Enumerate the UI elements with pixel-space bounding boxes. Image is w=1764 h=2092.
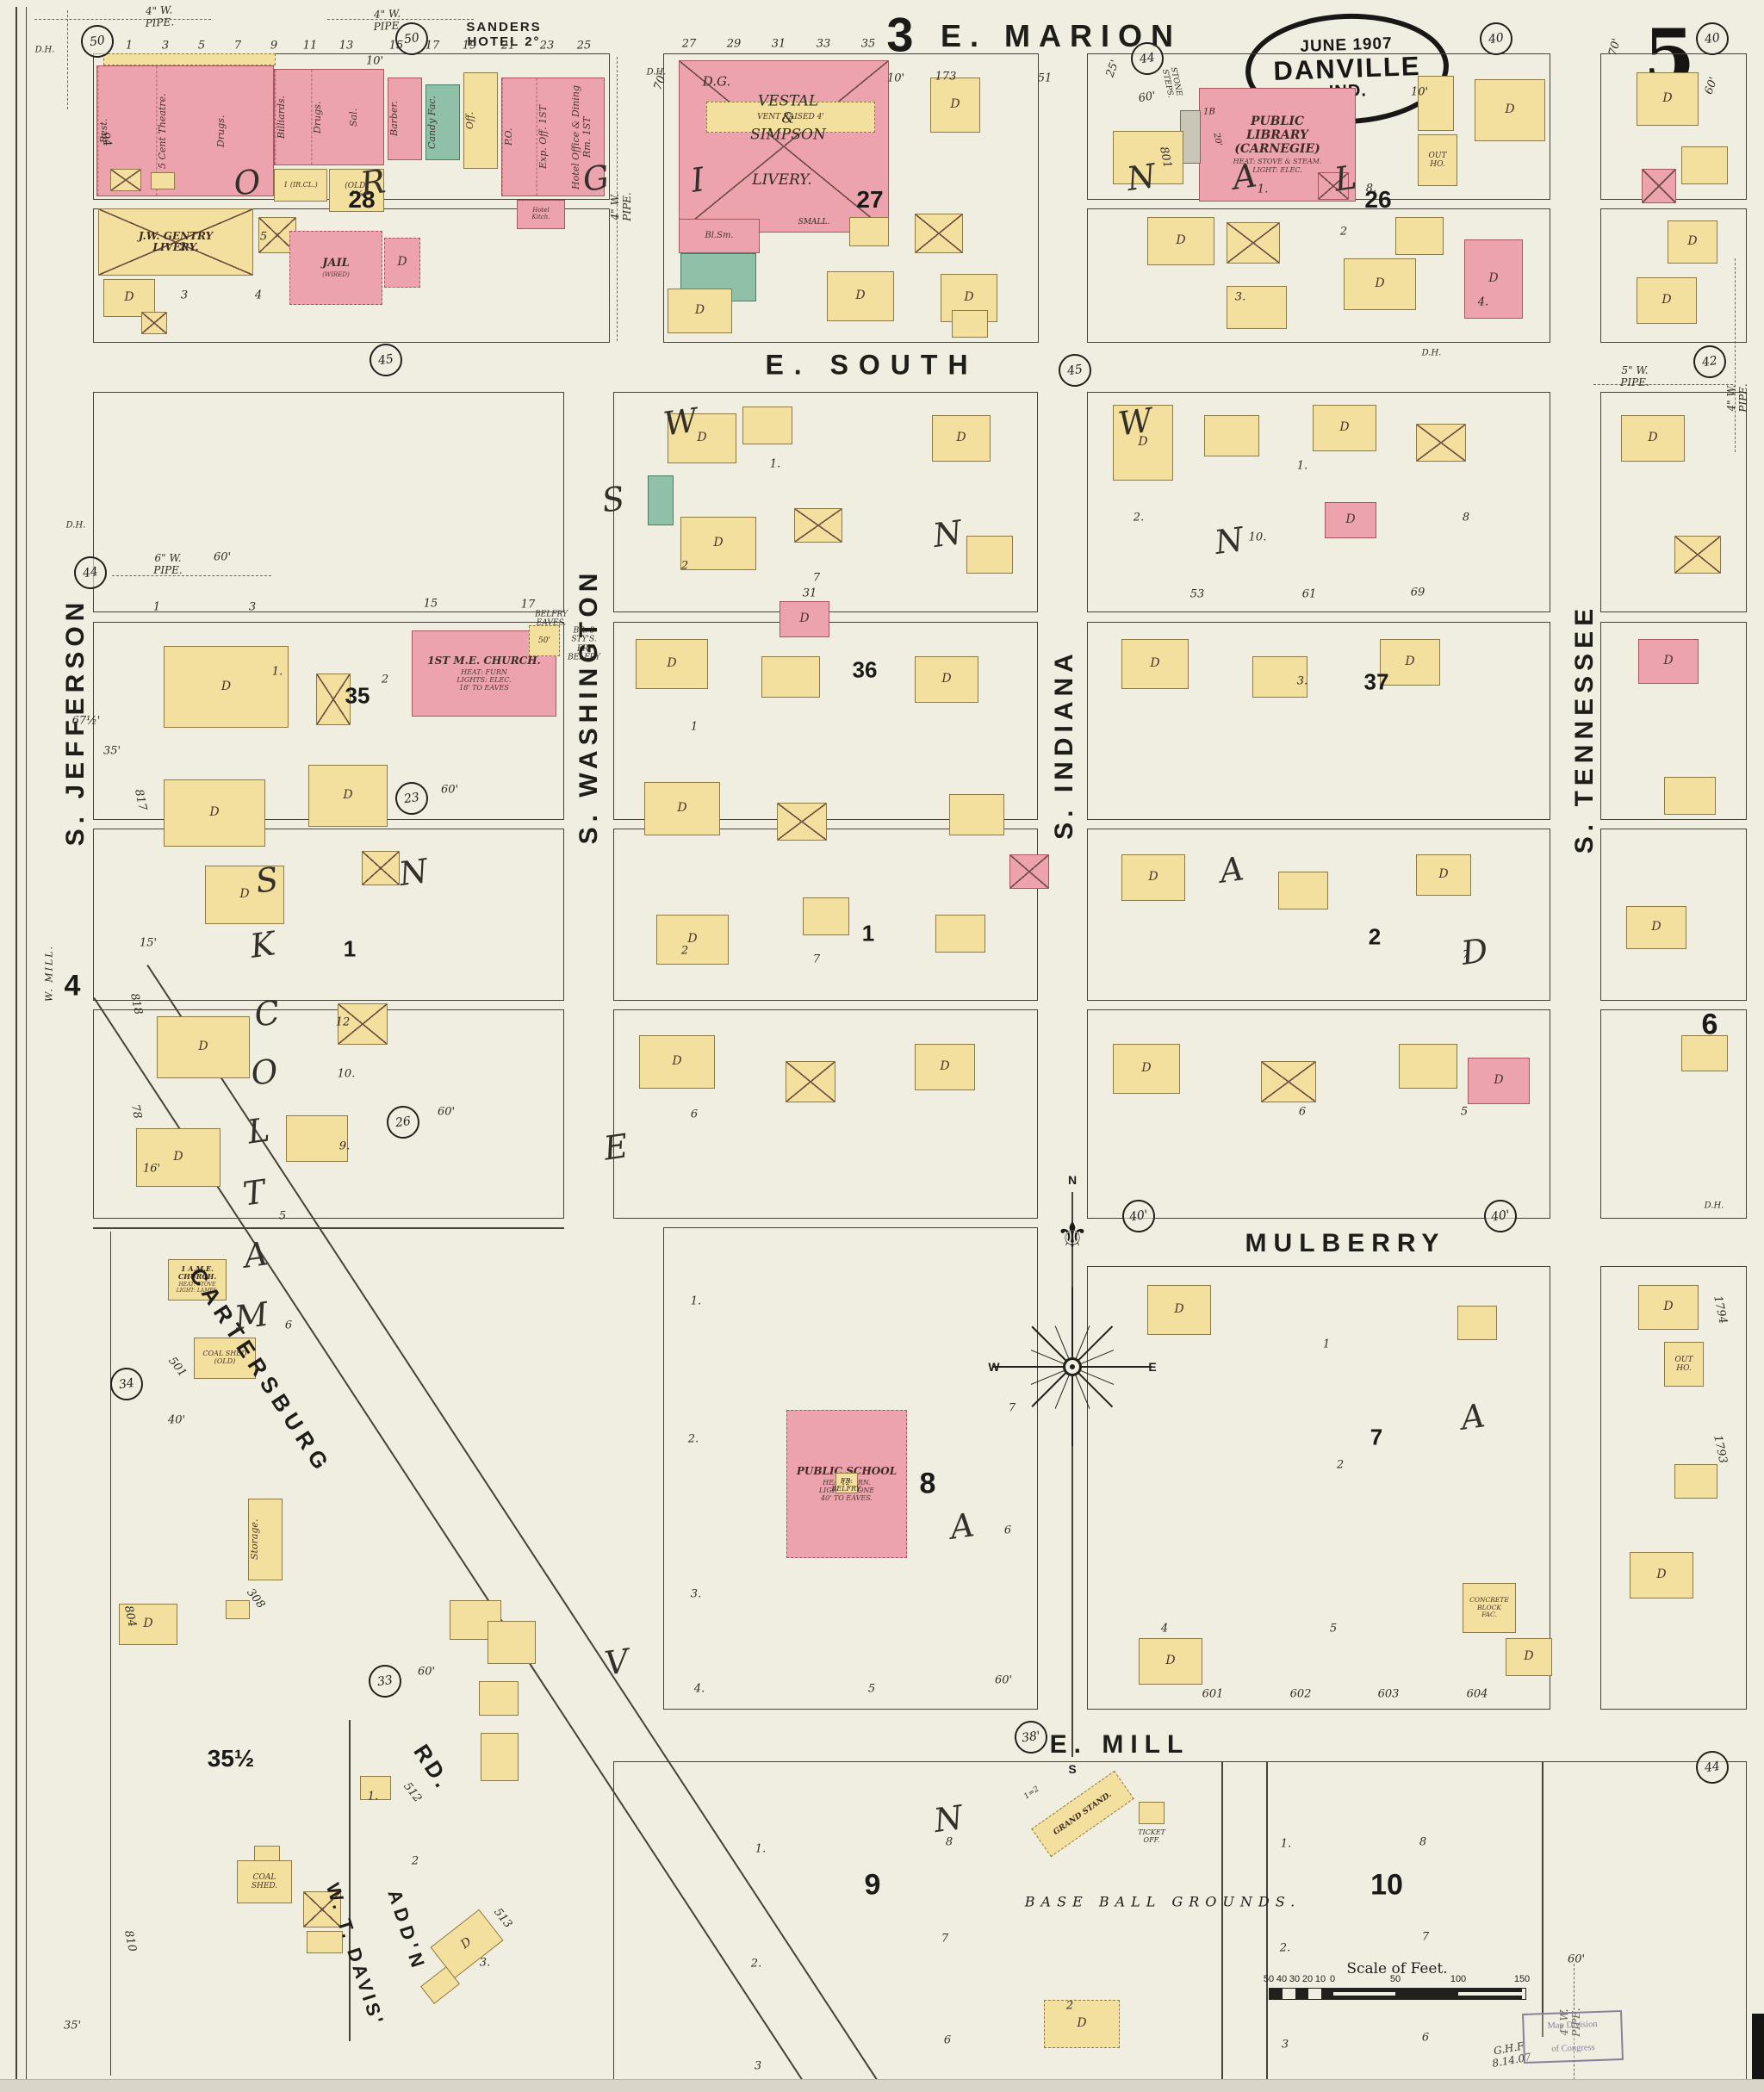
building-label: D <box>677 802 686 816</box>
building: Barber. <box>388 78 422 160</box>
map-annotation: 9. <box>339 1141 350 1154</box>
building <box>648 475 674 525</box>
block-number: 10 <box>1370 1869 1403 1903</box>
map-annotation: 7 <box>941 1934 948 1946</box>
map-annotation: 6 <box>944 2035 951 2048</box>
block-outline <box>1087 1009 1550 1219</box>
block-number: 37 <box>1364 669 1389 696</box>
loc-stamp: Map Division of Congress <box>1522 2010 1624 2064</box>
building: D <box>1147 217 1214 265</box>
block-number: 9 <box>865 1869 881 1903</box>
building-label: D <box>1150 657 1159 671</box>
map-annotation: 4. <box>694 1684 705 1697</box>
map-annotation: 604 <box>1467 1689 1488 1702</box>
map-annotation: 7 <box>813 573 820 586</box>
building <box>1664 777 1716 815</box>
building: D <box>1468 1058 1530 1104</box>
block-number: 3 <box>886 7 913 63</box>
map-annotation: 8 <box>1463 512 1469 525</box>
building: D <box>1637 277 1697 324</box>
map-annotation: 33 <box>817 39 831 52</box>
map-annotation: 3 <box>181 290 188 303</box>
building <box>1457 1306 1497 1340</box>
map-annotation: 61 <box>1302 589 1317 602</box>
map-annotation: 78 <box>127 1103 143 1120</box>
map-annotation: 1B <box>1203 107 1215 117</box>
building: D <box>1113 1044 1180 1094</box>
map-annotation: 2 <box>1066 2001 1073 2014</box>
stamp-line-1: Map Division <box>1547 2020 1597 2031</box>
map-annotation: 3. <box>480 1958 490 1971</box>
building-label: Bl.Sm. <box>705 231 733 240</box>
building-use-labels: Barber. <box>388 78 421 159</box>
building-label: D <box>672 1055 681 1069</box>
building-label: D <box>1375 277 1384 291</box>
block-number: 7 <box>1370 1425 1382 1451</box>
building-label: D <box>956 431 966 445</box>
map-annotation: 1 <box>126 40 133 53</box>
building <box>1674 1464 1717 1499</box>
building-title: 1ST M.E. CHURCH. <box>427 655 540 667</box>
width-circle: 33 <box>367 1663 404 1700</box>
building: D <box>1668 220 1717 264</box>
width-circle: 34 <box>109 1366 146 1403</box>
map-annotation: 7 <box>1422 1932 1429 1945</box>
addition-letter: A <box>1230 156 1258 196</box>
block-number: 1 <box>344 936 356 963</box>
map-annotation: 94 <box>97 131 113 147</box>
building-use-label: Exp. Off. 1ST <box>537 78 571 196</box>
map-annotation: 6 <box>285 1320 292 1333</box>
building: D <box>1380 639 1440 686</box>
map-annotation: 5 <box>198 40 205 53</box>
map-annotation: 3. <box>1235 292 1245 305</box>
building-label: 50' <box>538 636 550 645</box>
building-label: D <box>1651 921 1661 934</box>
building <box>141 312 167 334</box>
map-annotation: 31 <box>772 39 786 52</box>
building-use-label: P.O. <box>502 78 537 196</box>
map-annotation: 60' <box>995 1675 1012 1688</box>
map-annotation: 8 <box>1419 1837 1426 1850</box>
building-use-labels: Off. <box>464 73 497 168</box>
building: D <box>157 1016 250 1078</box>
building: Billiards.Drugs.Sal. <box>274 69 384 165</box>
street-label: E. MILL <box>1050 1730 1190 1760</box>
map-annotation: 601 <box>1202 1689 1224 1702</box>
building: D <box>644 782 720 835</box>
width-circle: 38' <box>1013 1719 1050 1756</box>
building-label: D <box>950 98 960 112</box>
building <box>786 1061 835 1102</box>
building: D <box>1139 1638 1202 1685</box>
map-annotation: D.G. <box>703 74 730 89</box>
building-label: D <box>209 806 219 820</box>
map-line <box>1071 1192 1073 1757</box>
map-annotation: TICKET OFF. <box>1138 1828 1165 1844</box>
map-annotation: 7 <box>1009 1403 1016 1416</box>
map-annotation: 1. <box>368 1791 378 1804</box>
building-label: D <box>799 612 809 626</box>
building: D <box>1147 1285 1211 1335</box>
map-annotation: 5 <box>868 1684 875 1697</box>
map-annotation: LIVERY. <box>752 172 811 189</box>
building: Storage. <box>248 1499 283 1580</box>
building: D <box>164 779 265 847</box>
building-label: D <box>964 291 973 305</box>
map-annotation: 69 <box>1411 587 1425 600</box>
building-label: D <box>940 1060 949 1074</box>
building: D <box>930 78 980 133</box>
map-annotation: 15 <box>424 599 438 611</box>
map-annotation: 2 <box>382 674 388 687</box>
building-use-label: Barber. <box>388 78 421 159</box>
map-annotation: 15' <box>140 938 157 951</box>
building-label: D <box>1148 871 1158 885</box>
building-label: OUT HO. <box>1429 152 1447 169</box>
building: 1 (IR.CL.) <box>274 169 327 202</box>
map-annotation: 5 <box>279 1211 286 1224</box>
map-annotation: SMALL. <box>798 218 830 227</box>
building-title: J.W. GENTRY LIVERY. <box>139 231 213 254</box>
map-annotation: 35 <box>861 39 876 52</box>
addition-letter: G <box>581 158 612 199</box>
building-use-label: Off. <box>464 73 497 168</box>
building: D <box>1621 415 1685 462</box>
map-annotation: 4" W. PIPE. <box>1726 383 1750 412</box>
building <box>1261 1061 1316 1102</box>
scale-tick-label: 50 <box>1264 1974 1274 1984</box>
addition-letter: O <box>249 1052 281 1093</box>
building: JAIL(WIRED) <box>289 231 382 305</box>
building-use-label: Billiards. <box>275 70 311 165</box>
map-annotation: 2 <box>1337 1460 1344 1473</box>
building-label: D <box>1663 1301 1673 1314</box>
building <box>915 214 963 253</box>
building-label: D <box>124 291 134 305</box>
building: D <box>827 271 894 321</box>
building: D <box>430 1909 503 1979</box>
building <box>849 217 889 246</box>
map-annotation: 6 <box>691 1109 698 1122</box>
building <box>479 1681 519 1716</box>
scale-tick-label: 50 <box>1390 1974 1401 1984</box>
building <box>761 656 820 698</box>
map-annotation: 3. <box>691 1589 701 1602</box>
block-number: 4 <box>65 970 81 1003</box>
building: D <box>384 238 420 288</box>
building-use-labels: Candy Fac. <box>426 85 459 159</box>
building-label: D <box>1494 1074 1503 1088</box>
map-annotation: 4" W. PIPE. <box>145 4 175 29</box>
map-annotation: 11 <box>303 40 318 53</box>
building: Off. <box>463 72 498 169</box>
map-annotation: 602 <box>1290 1689 1312 1702</box>
map-annotation: 1. <box>1297 461 1307 474</box>
building-label: Hotel Kitch. <box>532 208 550 221</box>
addition-letter: A <box>1217 849 1245 890</box>
width-circle: 42 <box>1692 344 1729 381</box>
map-annotation: 10. <box>1249 532 1267 545</box>
map-annotation: 6 <box>1004 1525 1011 1538</box>
map-annotation: 6 <box>1299 1107 1306 1120</box>
building <box>777 803 827 841</box>
building: D <box>1325 502 1376 538</box>
map-annotation: D.H. <box>1422 348 1442 358</box>
addition-letter: N <box>931 1798 965 1840</box>
addition-letter: V <box>602 1642 630 1682</box>
map-annotation: 4 <box>1161 1623 1168 1636</box>
building <box>488 1621 536 1664</box>
map-annotation: 17 <box>425 40 440 53</box>
building <box>803 897 849 935</box>
building: COAL SHED. <box>237 1860 292 1903</box>
building: D <box>136 1128 220 1187</box>
map-annotation: 27 <box>682 39 697 52</box>
map-annotation: 3 <box>249 602 256 615</box>
map-annotation: 67½' <box>72 716 101 729</box>
map-annotation: 1. <box>755 1844 766 1857</box>
map-annotation: 512 <box>400 1781 423 1806</box>
stamp-line-2: of Congress <box>1551 2043 1595 2054</box>
scale-tick-label: 100 <box>1450 1974 1466 1984</box>
map-annotation: 3. <box>1297 676 1307 689</box>
addition-letter: K <box>248 924 277 965</box>
building <box>949 794 1004 835</box>
block-outline <box>1600 1266 1747 1710</box>
building-label: D <box>1505 103 1514 117</box>
building-label: D <box>343 789 352 803</box>
building: D <box>164 646 289 728</box>
map-annotation: 23 <box>540 40 555 53</box>
map-annotation: 40' <box>168 1415 185 1428</box>
building: D <box>1464 239 1523 319</box>
addition-letter: A <box>241 1234 270 1275</box>
building-note: (WIRED) <box>322 271 349 278</box>
street-label: W. MILL. <box>44 945 55 1002</box>
map-annotation: 17 <box>521 599 536 612</box>
addition-letter: N <box>1212 520 1245 562</box>
map-annotation: 4 <box>255 290 262 303</box>
building-label: D <box>198 1040 208 1054</box>
map-annotation: 16' <box>143 1164 160 1176</box>
building <box>254 1846 280 1861</box>
map-line <box>67 10 68 109</box>
addition-letter: N <box>930 513 964 555</box>
building <box>966 536 1013 574</box>
block-number: 35½ <box>208 1745 255 1772</box>
map-annotation: 60' <box>441 785 458 798</box>
map-annotation: 3 <box>1282 2039 1289 2052</box>
building: D <box>915 656 978 703</box>
addition-letter: C <box>252 993 283 1034</box>
building <box>1395 217 1444 255</box>
building <box>362 851 400 885</box>
block-number: 6 <box>1702 1009 1718 1042</box>
building <box>742 407 792 444</box>
building-use-labels: Storage. <box>249 1499 282 1580</box>
building-label: D <box>1656 1568 1666 1582</box>
map-annotation: 2 <box>1340 227 1347 239</box>
map-annotation: 19 <box>463 40 477 53</box>
building <box>110 169 141 191</box>
building-label: CONCRETE BLOCK FAC. <box>1469 1597 1509 1618</box>
map-annotation: VESTAL & SIMPSON <box>750 94 826 145</box>
building: D <box>915 1044 975 1090</box>
building: D <box>1638 1285 1699 1330</box>
scan-edge-bottom <box>0 2079 1764 2092</box>
compass-fleur-icon: ⚜ <box>1056 1214 1089 1257</box>
building-label: D <box>143 1617 152 1631</box>
map-annotation: 3 <box>755 2061 761 2074</box>
map-annotation: 810 <box>121 1929 138 1952</box>
map-annotation: 1. <box>770 459 780 472</box>
building <box>1278 872 1328 909</box>
building: D <box>1416 854 1471 896</box>
map-annotation: 1. <box>691 1296 701 1309</box>
map-annotation: 60' <box>418 1667 435 1679</box>
map-annotation: 5 <box>1330 1623 1337 1636</box>
building <box>952 310 988 338</box>
map-line <box>34 19 211 20</box>
map-line <box>349 1720 351 2041</box>
map-annotation: 5 <box>260 232 267 245</box>
map-annotation: 2 <box>179 242 186 255</box>
map-annotation: 15 <box>389 40 404 53</box>
map-annotation: FR. BELFRY. <box>831 1477 861 1493</box>
building-label: D <box>695 304 705 318</box>
building: D <box>932 415 991 462</box>
map-annotation: 13 <box>339 40 354 53</box>
building-label: D <box>1648 431 1657 445</box>
map-annotation: 4" W. PIPE. <box>610 192 634 220</box>
map-line <box>16 7 17 2087</box>
map-line <box>93 1227 564 1229</box>
building-label: D <box>855 289 865 303</box>
sanborn-map-sheet: June 1907 DANVILLE IND. 5 Rest.5 Cent Th… <box>0 0 1764 2092</box>
map-annotation: 1 <box>1323 1339 1330 1352</box>
map-line <box>26 7 27 2087</box>
map-annotation: D.H. <box>647 67 667 78</box>
map-annotation: BELFRY EAVES. <box>535 611 568 629</box>
building-label: D <box>1077 2017 1086 2031</box>
building: D <box>1313 405 1376 451</box>
addition-letter: R <box>358 162 388 203</box>
map-annotation: D.H. <box>1705 1201 1724 1211</box>
building <box>1416 424 1466 462</box>
building-use-labels: Billiards.Drugs.Sal. <box>275 70 383 165</box>
block-number: 35 <box>345 683 370 710</box>
building: OUT HO. <box>1664 1342 1704 1387</box>
street-label: S. TENNESSEE <box>1570 604 1599 854</box>
building <box>1139 1802 1165 1824</box>
map-annotation: 5" W. PIPE. <box>1620 365 1649 389</box>
map-annotation: 31 <box>803 588 817 601</box>
street-label: BASE BALL GROUNDS. <box>1025 1894 1301 1910</box>
map-annotation: 35' <box>64 2021 81 2033</box>
map-annotation: 6 <box>1422 2033 1429 2045</box>
map-annotation: 2 <box>681 946 688 959</box>
map-annotation: 10' <box>366 56 383 69</box>
building: Hotel Kitch. <box>517 200 565 229</box>
building: Bl.Sm. <box>679 219 760 253</box>
map-annotation: 603 <box>1378 1689 1400 1702</box>
building: D <box>1637 72 1699 126</box>
building-note: HEAT: FURN LIGHTS: ELEC. 18' TO EAVES <box>457 668 511 692</box>
map-annotation: 1 <box>153 602 160 615</box>
building-label: D <box>1176 234 1185 248</box>
compass-south-label: S <box>1068 1762 1076 1776</box>
map-annotation: 53 <box>1190 589 1205 602</box>
map-annotation: 12 <box>336 1017 351 1030</box>
addition-letter: N <box>1124 157 1158 198</box>
building <box>1204 415 1259 456</box>
map-annotation: 6" W. PIPE. <box>153 553 182 577</box>
building-label: D <box>1663 655 1673 668</box>
width-circle: 40 <box>1694 21 1731 58</box>
map-annotation: 5 <box>1461 1107 1468 1120</box>
addition-letter: A <box>947 1505 976 1546</box>
block-number: 8 <box>920 1468 936 1501</box>
map-line <box>110 1232 111 2076</box>
building-use-label: Candy Fac. <box>426 85 459 159</box>
building: D <box>1626 906 1686 949</box>
building: D <box>1121 639 1189 689</box>
building <box>286 1115 348 1162</box>
street-label: ADD'N <box>382 1887 430 1975</box>
scale-tick-label: 20 <box>1302 1974 1313 1984</box>
building-label: D <box>941 673 951 686</box>
map-annotation: 1. <box>1258 184 1268 197</box>
building: D <box>1506 1638 1552 1676</box>
map-annotation: 51 <box>1038 73 1053 86</box>
addition-letter: O <box>232 162 264 203</box>
map-annotation: 4" W. PIPE. <box>373 8 403 33</box>
building-label: D <box>173 1151 183 1164</box>
map-annotation: 8 <box>946 1837 953 1850</box>
building: J.W. GENTRY LIVERY. <box>98 208 253 276</box>
building-label: D <box>687 933 697 947</box>
addition-letter: A <box>1458 1396 1487 1437</box>
building: D <box>1121 854 1185 901</box>
building: Candy Fac. <box>425 84 460 160</box>
map-annotation: 8. <box>1366 183 1376 196</box>
building-label: D <box>1165 1654 1175 1668</box>
width-circle: 40 <box>1478 21 1515 58</box>
building-title: PUBLIC LIBRARY (CARNEGIE) <box>1234 115 1320 156</box>
map-annotation: 2. <box>688 1434 699 1447</box>
map-annotation: 2. <box>751 1959 761 1971</box>
building-label: D <box>1345 513 1355 527</box>
map-annotation: 25 <box>577 40 592 53</box>
building: D <box>1638 639 1699 684</box>
building <box>1681 146 1728 184</box>
building: D <box>680 517 756 570</box>
scale-tick-label: 10 <box>1315 1974 1326 1984</box>
map-annotation: 1. <box>272 667 283 680</box>
street-label: W. T. DAVIS' <box>321 1880 388 2029</box>
building-label: D <box>1662 92 1672 106</box>
map-annotation: 7 <box>813 954 820 967</box>
building <box>1009 854 1049 889</box>
map-annotation: 60' <box>214 552 231 565</box>
block-outline <box>93 829 564 1001</box>
addition-letter: E <box>601 1127 630 1167</box>
block-outline <box>93 392 564 612</box>
building-label: D <box>1174 1303 1183 1317</box>
building-use-label: Storage. <box>249 1499 282 1580</box>
building <box>1418 76 1454 131</box>
